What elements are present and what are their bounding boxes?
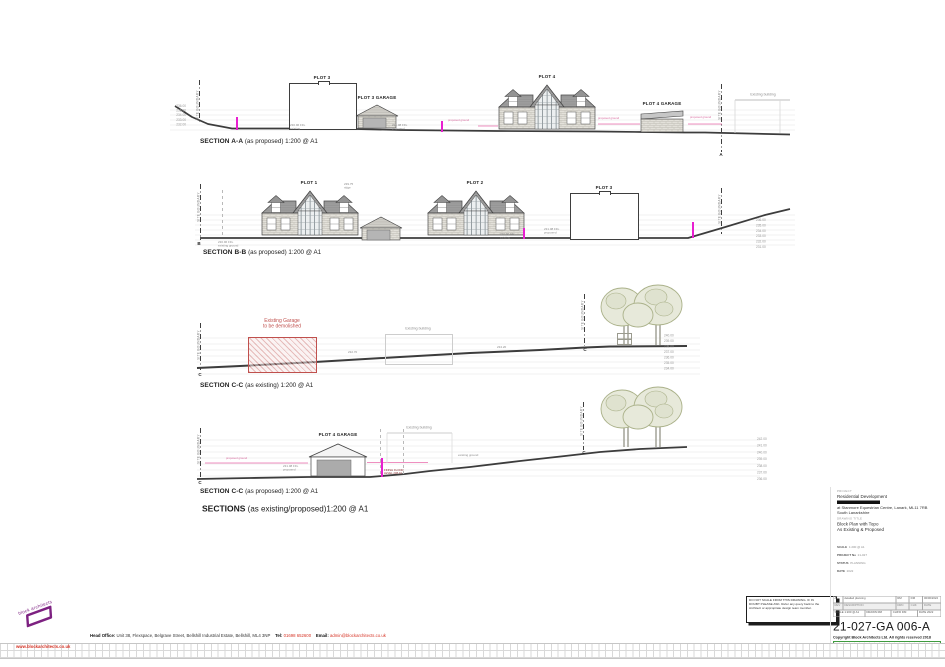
project-address-1: at Stanmore Equestrian Centre, Lanark, M… bbox=[837, 506, 927, 511]
pgl-note-ccp: proposed ground bbox=[226, 457, 270, 463]
section-marker-a: A bbox=[717, 152, 725, 160]
project-label: PROJECT bbox=[837, 490, 852, 493]
boundary-text: SITE BOUNDARY bbox=[196, 90, 200, 120]
demolish-note: Existing Garage to be demolished bbox=[239, 318, 324, 332]
mid-garage-elevation bbox=[359, 215, 403, 241]
existing-building-label-cce: Existing building bbox=[385, 327, 451, 334]
section-aa-title: SECTION A-A (as proposed) 1:200 @ A1 bbox=[200, 137, 450, 147]
pgl-note-aa-1: proposed ground bbox=[448, 119, 488, 125]
plot2-label: PLOT 2 bbox=[426, 180, 524, 188]
ridge-note-bb: 239.75 ridge bbox=[344, 183, 370, 193]
ffl-red-note-ccp: FINISH FLOOR LEVEL 238.10 bbox=[384, 469, 424, 479]
section-ccp-title: SECTION C-C (as proposed) 1:200 @ A1 bbox=[200, 487, 450, 497]
meta-scale: SCALE 1:200 @ A1 bbox=[837, 546, 865, 549]
levels-cce-right: 240.00 239.00 238.00 237.00 236.00 235.0… bbox=[664, 333, 692, 375]
section-marker-c2-mid: C bbox=[580, 450, 588, 458]
plot1-house-elevation bbox=[260, 188, 358, 238]
title-block: PROJECT Residential Development at Stanm… bbox=[833, 489, 943, 659]
meta-project-no: PROJECT No 21-027 bbox=[837, 554, 867, 557]
setback-dashed-line bbox=[222, 190, 223, 238]
head-office-label: Head Office: bbox=[90, 633, 115, 638]
plot4-label: PLOT 4 bbox=[497, 74, 597, 82]
plot3-label: PLOT 3 bbox=[289, 75, 355, 83]
drawing-title-2: As Existing & Proposed bbox=[837, 527, 884, 532]
boundary-marker-magenta bbox=[692, 222, 694, 238]
plot3-garage-label: PLOT 3 GARAGE bbox=[346, 95, 408, 103]
levels-bb-right: 236.00 235.00 234.00 233.00 232.00 231.0… bbox=[756, 218, 786, 252]
plot2-house-elevation bbox=[426, 188, 524, 238]
do-not-scale-note: DO NOT SCALE FROM THIS DRAWING. IF IN DO… bbox=[746, 596, 837, 623]
redacted-bar bbox=[837, 501, 880, 505]
plot4-house-elevation bbox=[497, 82, 597, 132]
pgl-note-aa-3: proposed ground bbox=[690, 116, 730, 122]
email-address[interactable]: admin@blockarchitects.co.uk bbox=[330, 633, 386, 638]
plot4-garage-elevation bbox=[640, 109, 684, 133]
email-label: Email: bbox=[316, 633, 329, 638]
head-office-line: Head Office: Unit 38, Flexspace, Belgrav… bbox=[90, 633, 750, 642]
pgl-note-aa-2: proposed ground bbox=[598, 117, 638, 123]
section-cce-title: SECTION C-C (as existing) 1:200 @ A1 bbox=[200, 381, 450, 391]
existing-building-label-ccp: Existing building bbox=[387, 426, 451, 433]
section-bb-title: SECTION B-B (as proposed) 1:200 @ A1 bbox=[203, 248, 453, 258]
revision-header-row: REV DESCRIPTION DRN CHK DATE bbox=[833, 603, 941, 610]
footer-grid-band bbox=[0, 643, 945, 659]
revision-table: A detailed planning RM DM 00/00/2022 REV… bbox=[833, 596, 941, 617]
drawing-title-label: DRAWING TITLE bbox=[837, 518, 862, 521]
existing-building-label-aa: Existing building bbox=[735, 93, 791, 100]
revision-row: A detailed planning RM DM 00/00/2022 bbox=[833, 596, 941, 603]
ffl-note-aa-2: 231.08 FFL proposed bbox=[392, 124, 426, 134]
meta-date: DATE 2022 bbox=[837, 570, 853, 573]
copyright-note: Copyright Block Architects Ltd. All righ… bbox=[833, 635, 931, 640]
bench bbox=[617, 333, 632, 345]
info-row: SCALE 1:200 @ A1 DRAWN RM CHK'D DM DATE … bbox=[833, 610, 941, 617]
levels-ccp-right: 242.00 241.00 240.00 239.00 238.00 237.0… bbox=[757, 436, 787, 486]
plot3-outline bbox=[289, 83, 357, 130]
boundary-marker-magenta bbox=[523, 228, 525, 239]
existing-ground-note-ccp: existing ground bbox=[458, 454, 498, 460]
title-block-divider bbox=[830, 487, 831, 657]
plot3-outline-bb bbox=[570, 193, 639, 240]
plot4-garage-label-ccp: PLOT 4 GARAGE bbox=[303, 432, 373, 440]
level-note-cce-2: 234.20 bbox=[497, 346, 523, 352]
head-office-address: Unit 38, Flexspace, Belgrave Street, Bel… bbox=[115, 633, 270, 638]
existing-garage-demolish-hatch bbox=[248, 337, 317, 373]
tel-label: Tel: bbox=[275, 633, 282, 638]
section-aa-linework bbox=[170, 72, 795, 147]
existing-building-outline bbox=[385, 334, 453, 365]
drawing-title-1: Block Plan with Topo bbox=[837, 522, 878, 527]
boundary-marker-magenta bbox=[236, 117, 238, 130]
drawing-number: 21-027-GA 006-A bbox=[833, 620, 930, 634]
website-link[interactable]: www.blockarchitects.co.uk bbox=[16, 644, 136, 652]
project-name: Residential Development bbox=[837, 494, 887, 499]
ffl-note-aa-1: 230.96 FFL existing bbox=[290, 124, 324, 134]
plot3-label-bb: PLOT 3 bbox=[570, 185, 637, 193]
section-marker-c: C bbox=[196, 372, 204, 380]
project-address-2: South Lanarkshire bbox=[837, 511, 869, 516]
boundary-marker-magenta bbox=[381, 458, 383, 477]
ffl-note-bb-1: 230.96 FFL existing bbox=[500, 233, 534, 243]
drawing-sheet: SITE BOUNDARY 236.00 235.00 234.00 233.0… bbox=[0, 0, 945, 667]
section-marker-c-mid: C bbox=[581, 347, 589, 355]
plot4-garage-label: PLOT 4 GARAGE bbox=[635, 101, 689, 109]
plot4-garage-elevation-ccp bbox=[308, 443, 368, 477]
sheet-title: SECTIONS (as existing/proposed)1:200 @ A… bbox=[202, 504, 502, 516]
tel-number[interactable]: 01698 652600 bbox=[284, 633, 311, 638]
level-note-cce-1: 232.70 bbox=[348, 351, 374, 357]
section-marker-b: B bbox=[195, 241, 203, 249]
levels-aa-left: 236.00 235.00 234.00 233.00 232.00 bbox=[160, 104, 186, 130]
meta-status: STATUS PLANNING bbox=[837, 562, 866, 565]
logo-text: block architects bbox=[18, 584, 95, 616]
boundary-marker-magenta bbox=[441, 121, 443, 132]
section-ccp-linework bbox=[195, 396, 795, 496]
trees-proposed bbox=[594, 385, 690, 449]
ffl-note-bb-2: 231.08 FFL proposed bbox=[544, 228, 578, 238]
